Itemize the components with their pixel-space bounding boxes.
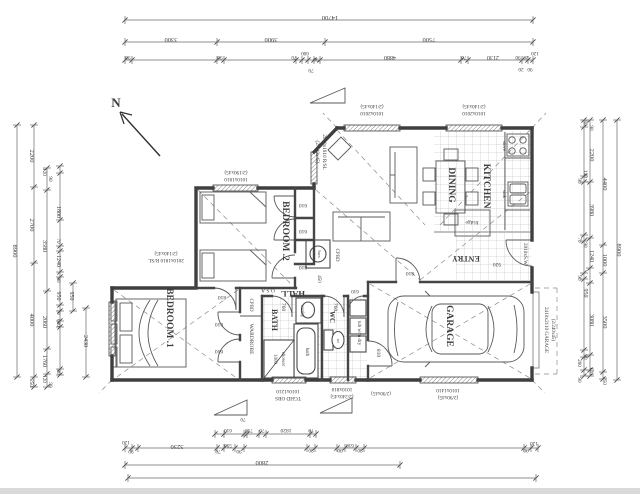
dim-label-bottom: 590 xyxy=(224,442,232,448)
window-label: (2/140x45) xyxy=(462,103,485,110)
dim-label-bottom: 610 xyxy=(224,427,232,433)
door-width-label: 810 xyxy=(375,349,381,358)
dim-label-bottom: 70 xyxy=(240,416,246,422)
dim-label-bottom: 90 xyxy=(523,447,529,453)
dim-label-bottom: 120 xyxy=(122,439,130,445)
dim-label-right: 3080 xyxy=(588,314,594,326)
dim-label-right: 250 xyxy=(601,377,607,385)
room-label: BEDROOM .2 xyxy=(280,201,290,261)
dim-label-left: 1800 xyxy=(55,206,61,218)
fixture-label: fridge xyxy=(465,219,479,226)
dim-label-right: 3500 xyxy=(601,316,608,329)
dim-label-top: 70 xyxy=(461,54,467,60)
window-label: 1010x2010 xyxy=(360,110,384,116)
dim-label-left: 120 xyxy=(41,375,47,383)
dim-label-right: 8900 xyxy=(615,244,622,257)
fixture-label: stove xyxy=(501,141,506,151)
window-label: (2/140x45) xyxy=(314,140,321,163)
dim-label-left: 2700 xyxy=(28,219,35,232)
floorplan-drawing: NBEDROOM .1BEDROOM .2DININGKITCHENGARAGE… xyxy=(0,0,640,494)
dim-label-bottom: 730 xyxy=(245,427,253,433)
dim-label-left: 1760 xyxy=(41,355,47,367)
dim-label-left: 120 xyxy=(41,168,47,176)
dim-label-left: 2200 xyxy=(28,150,35,163)
page-edge-shade xyxy=(0,488,640,494)
car xyxy=(388,291,524,367)
dim-label-right: 3980 xyxy=(588,204,594,216)
fixture-label: 450 xyxy=(316,275,321,283)
north-arrow-icon xyxy=(120,112,160,156)
dim-label-bottom: 120 xyxy=(530,440,538,446)
dim-label-left: 4000 xyxy=(28,314,35,327)
dim-label-right: 90 xyxy=(576,275,582,281)
door-width-label: 810 xyxy=(299,264,308,270)
dim-label-right: 120 xyxy=(582,170,588,178)
dim-label-bottom: 90 xyxy=(308,447,314,453)
dim-label-top: 70 xyxy=(308,67,314,73)
window-label: (2/240x45) xyxy=(550,319,555,342)
dim-label-right: 4400 xyxy=(601,178,608,191)
fixture-label: shower xyxy=(280,352,285,367)
dim-label-left: 90 xyxy=(47,382,53,388)
north-label: N xyxy=(111,95,121,110)
dim-label-bottom: 610 xyxy=(346,442,354,448)
dim-label-bottom: 70 xyxy=(215,448,221,454)
dim-label-top: 14700 xyxy=(322,14,338,21)
dim-label-left: 70 xyxy=(55,238,61,244)
dim-label-top: 7500 xyxy=(423,36,436,43)
dim-label-top: 600 xyxy=(301,50,309,56)
dim-label-right: 2200 xyxy=(588,149,595,162)
dim-label-left: 90 xyxy=(55,369,61,375)
dim-label-top: 3900 xyxy=(265,36,278,43)
room-label: DINING xyxy=(446,167,456,203)
door-width-label: 610 xyxy=(299,228,308,234)
fixture-label: vanity xyxy=(299,305,304,318)
door-width-label: 760 xyxy=(280,303,286,312)
room-label: GARAGE xyxy=(444,305,454,347)
fixture-label: hws xyxy=(317,250,322,257)
dim-label-top: 2130 xyxy=(487,54,499,60)
dim-label-left: 600 xyxy=(55,319,61,327)
room-label: KITCHEN xyxy=(481,164,491,209)
floorplan-sheet: NBEDROOM .1BEDROOM .2DININGKITCHENGARAGE… xyxy=(0,0,640,494)
dim-label-left: 250 xyxy=(28,379,34,387)
door-width-label: 810 xyxy=(406,270,415,276)
fixture-label: O.S.A xyxy=(261,287,275,293)
fixture-label: CPBD xyxy=(334,248,339,261)
dim-label-left: 1240 xyxy=(55,255,61,267)
dim-label-left: 90 xyxy=(47,176,53,182)
dim-label-bottom: 70 xyxy=(308,427,314,433)
dim-label-top: 90 xyxy=(217,54,223,60)
dim-label-bottom: 2800 xyxy=(256,459,269,466)
window-label: TGHD OBS xyxy=(275,395,301,401)
dim-label-bottom: 3230 xyxy=(171,443,184,450)
dim-label-top: 3300 xyxy=(165,36,178,43)
window-label: 1010x810 xyxy=(331,386,352,392)
dim-label-right: 90 xyxy=(576,178,582,184)
room-label: BEDROOM .1 xyxy=(164,288,174,348)
dim-label-top: 4880 xyxy=(384,54,396,60)
dim-label-bottom: 90 xyxy=(337,447,343,453)
dim-label-top: 90 xyxy=(515,54,521,60)
door-width-label: 810 xyxy=(218,294,227,300)
window-label: 1010x1410 xyxy=(436,387,460,393)
window-label: (2/190x45) xyxy=(224,169,247,176)
dim-label-left: 2060 xyxy=(41,316,47,328)
dim-label-right: 70 xyxy=(576,237,582,243)
window-label: (2/140x45) xyxy=(154,250,177,257)
dim-label-top: 20 xyxy=(518,66,524,72)
door-width-label: 610 xyxy=(215,321,224,327)
window-label: 2010x1810 R/SL xyxy=(321,134,327,170)
dim-label-bottom: 90 xyxy=(128,448,134,454)
dim-label-left: 8900 xyxy=(11,245,18,258)
window-label: (2/90x45) xyxy=(371,390,391,395)
window-label: (2/240x45) xyxy=(330,393,353,400)
dim-label-right: 90 xyxy=(576,377,582,383)
fixture-label: WARDROBE xyxy=(248,324,254,356)
door-width-label: 920 xyxy=(493,261,502,267)
dim-label-right: 950 xyxy=(582,289,588,298)
dim-label-right: 1240 xyxy=(588,250,594,262)
window-label: (2/90x45) xyxy=(438,394,459,401)
dim-label-bottom: 90 xyxy=(236,448,242,454)
dim-label-right: 120 xyxy=(588,367,594,375)
fixture-label: tub w/m dry xyxy=(356,321,361,346)
fixture-label: bath xyxy=(304,348,309,357)
dim-label-top: 90 xyxy=(125,54,131,60)
dim-label-right: 90 xyxy=(582,242,588,248)
dim-label-right: 1000 xyxy=(601,254,608,267)
dim-label-right: 80 xyxy=(582,120,588,126)
dim-label-left: 90 xyxy=(55,277,61,283)
door-width-label: 610 xyxy=(351,288,359,294)
dim-label-left: 3580 xyxy=(41,240,47,252)
window-label: 2010x1810 R/SL xyxy=(148,257,184,263)
door-width-label: 760 xyxy=(332,303,338,312)
fixture-label: sink xyxy=(501,190,506,199)
fixture-label: 1000 xyxy=(272,354,277,365)
door-width-label: 610 xyxy=(299,202,308,208)
dim-label-bottom: 1820 xyxy=(280,427,291,433)
room-label: HALL xyxy=(281,289,305,299)
room-label: ENTRY xyxy=(452,254,480,263)
dim-label-top: 90 xyxy=(527,66,533,72)
dim-label-left: 950 xyxy=(68,292,74,301)
dim-label-top: 70 xyxy=(291,54,297,60)
dim-label-bottom: 70 xyxy=(259,427,265,433)
window-label: 1010x1810 xyxy=(224,176,248,182)
dim-label-top: 20 xyxy=(523,54,529,60)
room-label: BATH xyxy=(270,309,279,332)
window-label: 2410x2110 GARAGE xyxy=(543,307,549,353)
door-width-label: 610 xyxy=(215,348,224,354)
room-label: WC xyxy=(328,311,336,323)
window-label: (2/140x45) xyxy=(360,103,383,110)
dim-label-top: 120 xyxy=(531,50,539,56)
window-label: 1010x1210 xyxy=(276,388,300,394)
fixture-label: wc xyxy=(336,339,341,344)
dim-label-left: 950 xyxy=(55,292,61,301)
dim-label-left: 70 xyxy=(55,309,61,315)
dim-label-top: 90 xyxy=(313,56,319,62)
dim-label-right: 280 xyxy=(576,359,582,367)
dim-label-right: 90 xyxy=(588,125,594,131)
dim-label-bottom: 90 xyxy=(357,447,363,453)
window-label: 2010xS.W xyxy=(522,243,528,265)
window-label: 1010x2010 xyxy=(462,110,486,116)
fixture-label: CPBD xyxy=(248,298,253,311)
dim-label-left: 2430 xyxy=(82,335,88,347)
